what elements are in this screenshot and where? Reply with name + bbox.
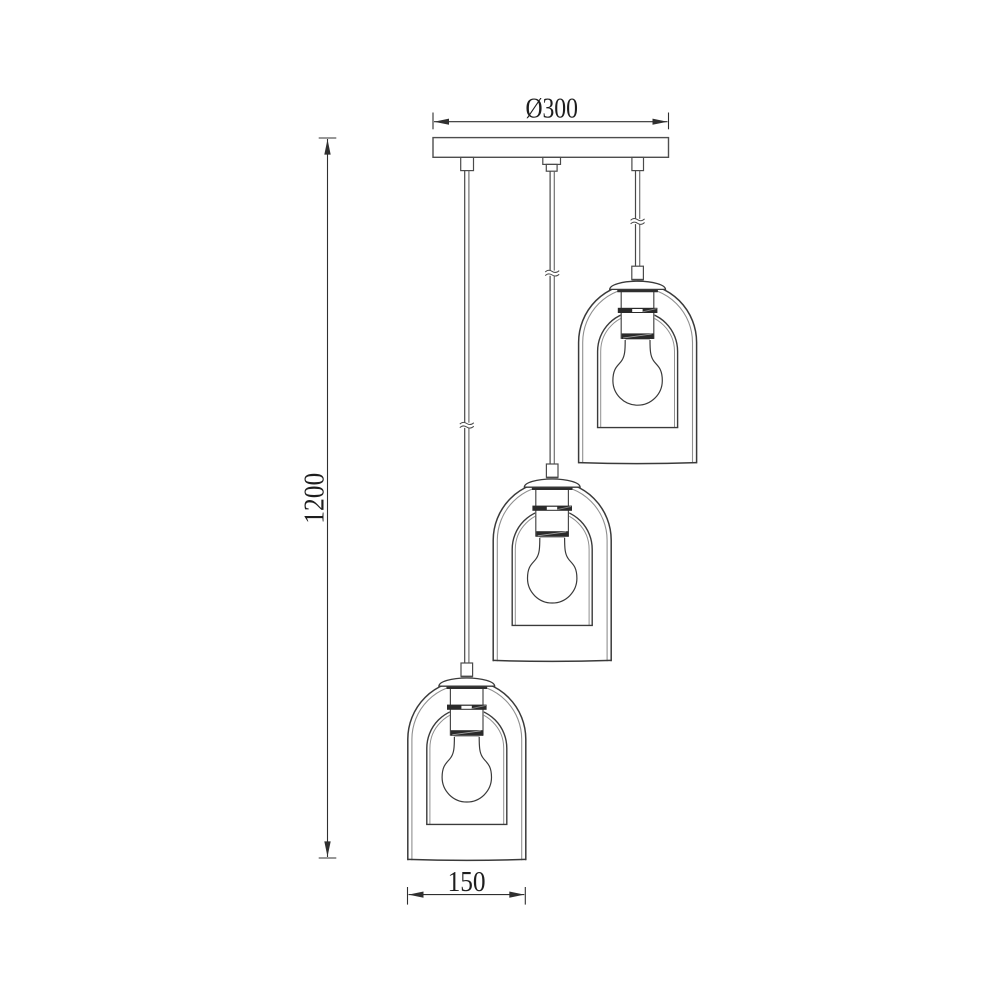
svg-text:1200: 1200 [300,473,331,524]
svg-text:Ø300: Ø300 [525,93,578,124]
svg-text:150: 150 [448,867,486,898]
